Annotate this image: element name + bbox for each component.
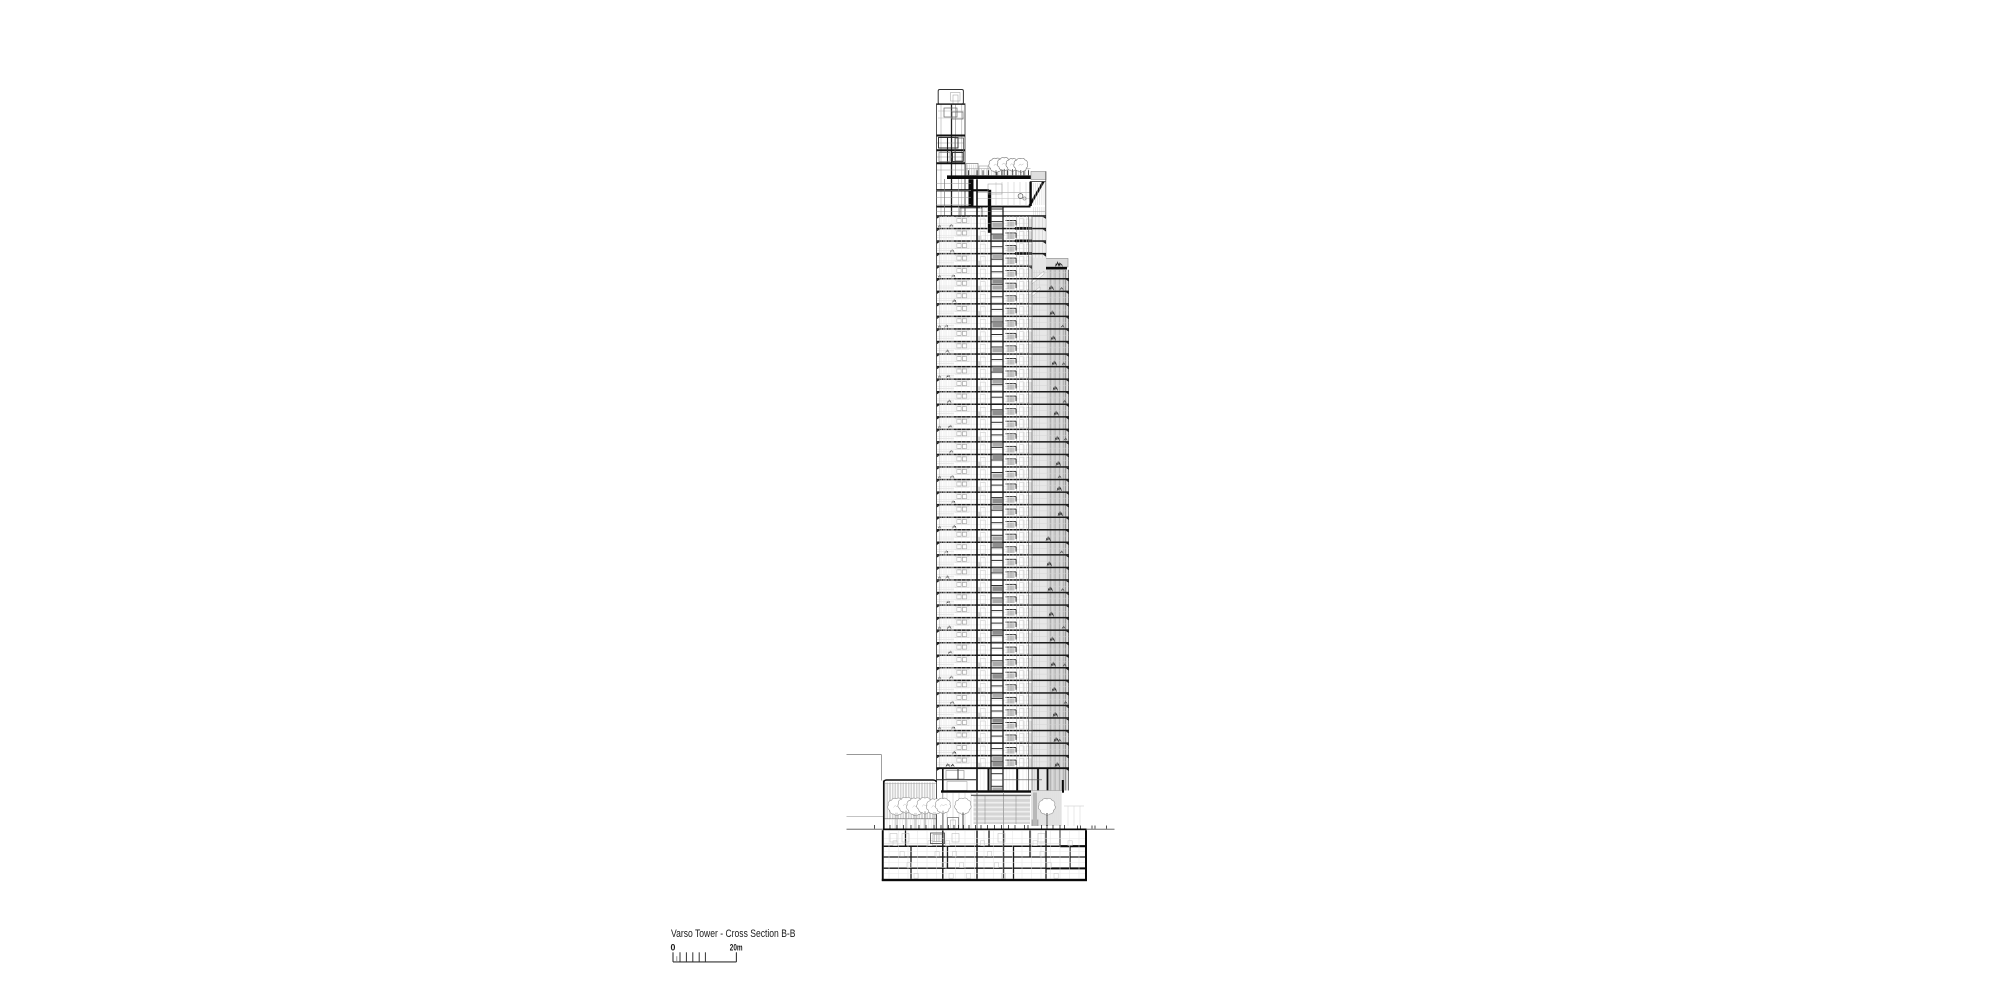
svg-text:Varso Tower - Cross Section B-: Varso Tower - Cross Section B-B (671, 928, 796, 940)
svg-text:20m: 20m (730, 943, 743, 953)
svg-text:0: 0 (671, 943, 676, 953)
